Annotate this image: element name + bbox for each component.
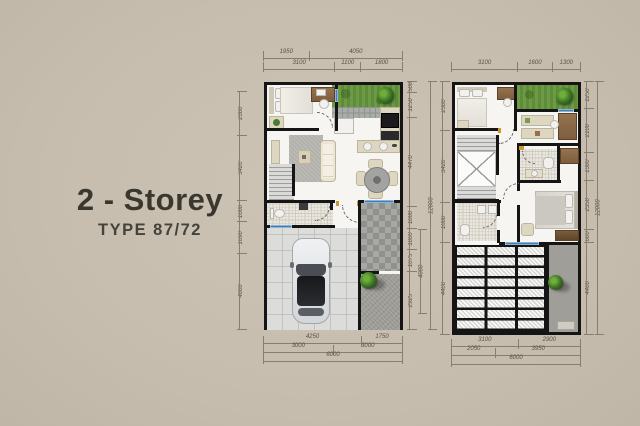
roof-over-garage <box>455 245 546 332</box>
dim-label: 1075 <box>407 250 417 271</box>
door-arc <box>503 183 519 199</box>
desk-chair <box>503 98 512 107</box>
car-mirror <box>290 262 294 268</box>
plan2-dim-right-outer: 12000 <box>595 82 604 335</box>
dim-label: 4400 <box>584 243 594 334</box>
toilet <box>460 224 470 236</box>
bar-stool <box>363 142 372 151</box>
pillow <box>459 89 470 97</box>
wall <box>514 85 517 131</box>
shelf-decor <box>535 131 540 136</box>
dim-label: 3000 <box>334 343 403 349</box>
desk-papers <box>316 89 326 96</box>
table-decor <box>302 155 306 159</box>
dim-label: 1080 <box>237 201 247 221</box>
dim-label: 2900 <box>519 337 580 343</box>
desk-chair <box>319 99 329 109</box>
shelf-decor <box>525 118 530 123</box>
staircase <box>269 164 294 202</box>
dim-label: 2100 <box>584 109 594 152</box>
car-roof <box>297 276 325 306</box>
door-jamb <box>519 146 524 150</box>
plan2-dim-left: 2300 3420 1880 4400 <box>440 82 450 335</box>
window <box>558 109 574 112</box>
car <box>292 238 330 324</box>
kitchen-stove <box>381 113 399 128</box>
wall <box>455 128 501 131</box>
side-cabinet <box>271 140 280 164</box>
window <box>335 89 338 102</box>
stair-treads <box>457 135 496 151</box>
wall <box>330 200 333 210</box>
bathroom-sink <box>299 203 308 210</box>
study-desk <box>558 113 577 140</box>
dim-label: 1250 <box>407 93 417 117</box>
dim-label: 1800 <box>361 60 402 66</box>
toilet <box>543 157 554 169</box>
first-floor-plan <box>264 82 403 330</box>
dim-label: 3100 <box>452 60 517 66</box>
dining-table <box>364 167 390 193</box>
bed-headboard <box>269 87 274 114</box>
bed-blanket <box>535 196 565 225</box>
plan1-dim-right-mid: 4000 <box>418 82 427 330</box>
terrace-tiles <box>361 203 400 271</box>
dim-label: 1750 <box>362 334 402 340</box>
plan1-dim-bottom-outer: 6000 <box>264 354 403 364</box>
bedroom-chair <box>521 223 534 236</box>
wall <box>517 180 561 183</box>
dim-label: 1300 <box>584 153 594 180</box>
stair-treads <box>457 187 496 199</box>
dim-label: 1950 <box>264 49 309 55</box>
dim-label: 500 <box>407 82 417 92</box>
dim-label: 600 <box>584 230 594 242</box>
second-floor-plan <box>452 82 581 335</box>
dim-label: 2300 <box>237 92 247 135</box>
dim-label: 1300 <box>553 60 580 66</box>
potted-plant <box>548 275 563 290</box>
dim-label: 3950 <box>496 346 580 352</box>
dim-label: 2050 <box>452 346 495 352</box>
bar-stool <box>379 142 388 151</box>
title-block: 2 - Storey TYPE 87/72 <box>30 182 270 240</box>
pillow <box>565 210 573 224</box>
dim-label: 1100 <box>335 60 360 66</box>
wall <box>496 135 499 175</box>
potted-plant <box>377 87 394 104</box>
dim-label: 6000 <box>452 355 580 361</box>
plan2-dim-right-inner: 1250 2100 1300 2350 600 4400 <box>584 82 594 335</box>
dim-label: 1250 <box>584 82 594 108</box>
dim-label: 4050 <box>310 49 402 55</box>
car-mirror <box>328 262 332 268</box>
dim-label: 4470 <box>407 118 417 206</box>
poster-background: 2 - Storey TYPE 87/72 1950 4050 3100 110… <box>0 0 640 426</box>
wall <box>517 205 520 243</box>
dim-label: 3420 <box>237 136 247 200</box>
dim-label: 12000 <box>428 82 437 329</box>
plan2-dim-bottom-outer: 6000 <box>452 357 581 367</box>
wardrobe <box>560 148 579 164</box>
desk-chair <box>550 120 559 129</box>
stair-void <box>457 151 496 187</box>
potted-plant <box>360 272 377 289</box>
cooktop-knobs <box>392 144 397 147</box>
dim-label: 4250 <box>264 334 361 340</box>
ac-unit <box>557 321 575 330</box>
door-arc <box>499 129 514 144</box>
dim-label: 4000 <box>237 254 247 329</box>
dim-label: 2925 <box>407 272 417 329</box>
dim-label: 1080 <box>407 207 417 228</box>
door-arc <box>317 112 333 128</box>
dim-label: 4400 <box>440 243 450 334</box>
wash-basin <box>531 170 538 177</box>
dim-label: 3420 <box>440 131 450 202</box>
dim-label: 3100 <box>264 60 334 66</box>
small-plant <box>273 119 280 126</box>
wardrobe <box>555 230 579 241</box>
potted-plant <box>556 88 573 105</box>
door-jamb <box>336 201 339 206</box>
dim-label: 1000 <box>407 229 417 249</box>
wall <box>267 128 319 131</box>
washer <box>488 205 497 214</box>
plan1-dim-top-inner: 3100 1100 1800 <box>264 62 403 72</box>
bed <box>280 87 313 114</box>
dim-label: 1600 <box>518 60 552 66</box>
plan1-dim-right-outer: 12000 <box>428 82 437 330</box>
dim-label: 2300 <box>440 82 450 130</box>
wall <box>497 230 500 243</box>
dim-label: 6000 <box>264 352 402 358</box>
plan2-dim-top: 3100 1600 1300 <box>452 62 581 72</box>
dim-label: 1880 <box>440 203 450 242</box>
dim-label: 4000 <box>418 230 427 313</box>
pillow <box>472 89 483 97</box>
page-subtitle: TYPE 87/72 <box>30 221 270 240</box>
toilet <box>274 209 285 218</box>
dim-label: 2350 <box>584 181 594 229</box>
wall <box>497 200 500 216</box>
plan1-dim-right-inner: 500 1250 4470 1080 1000 1075 2925 <box>407 82 417 330</box>
dim-label: 3000 <box>264 343 333 349</box>
dim-label: 1690 <box>237 222 247 254</box>
page-title: 2 - Storey <box>30 182 270 218</box>
dim-label: 12000 <box>595 82 604 334</box>
wall <box>517 143 578 146</box>
car-windshield <box>296 264 326 276</box>
car-rear-window <box>298 308 324 316</box>
pillow <box>565 194 573 208</box>
entry-path-tiles <box>332 107 382 118</box>
wash-basin <box>477 205 486 214</box>
plan1-dim-left: 2300 3420 1080 1690 4000 <box>237 92 247 330</box>
wall <box>292 164 295 196</box>
dim-label: 3100 <box>452 337 518 343</box>
sofa-cushions <box>323 144 333 178</box>
